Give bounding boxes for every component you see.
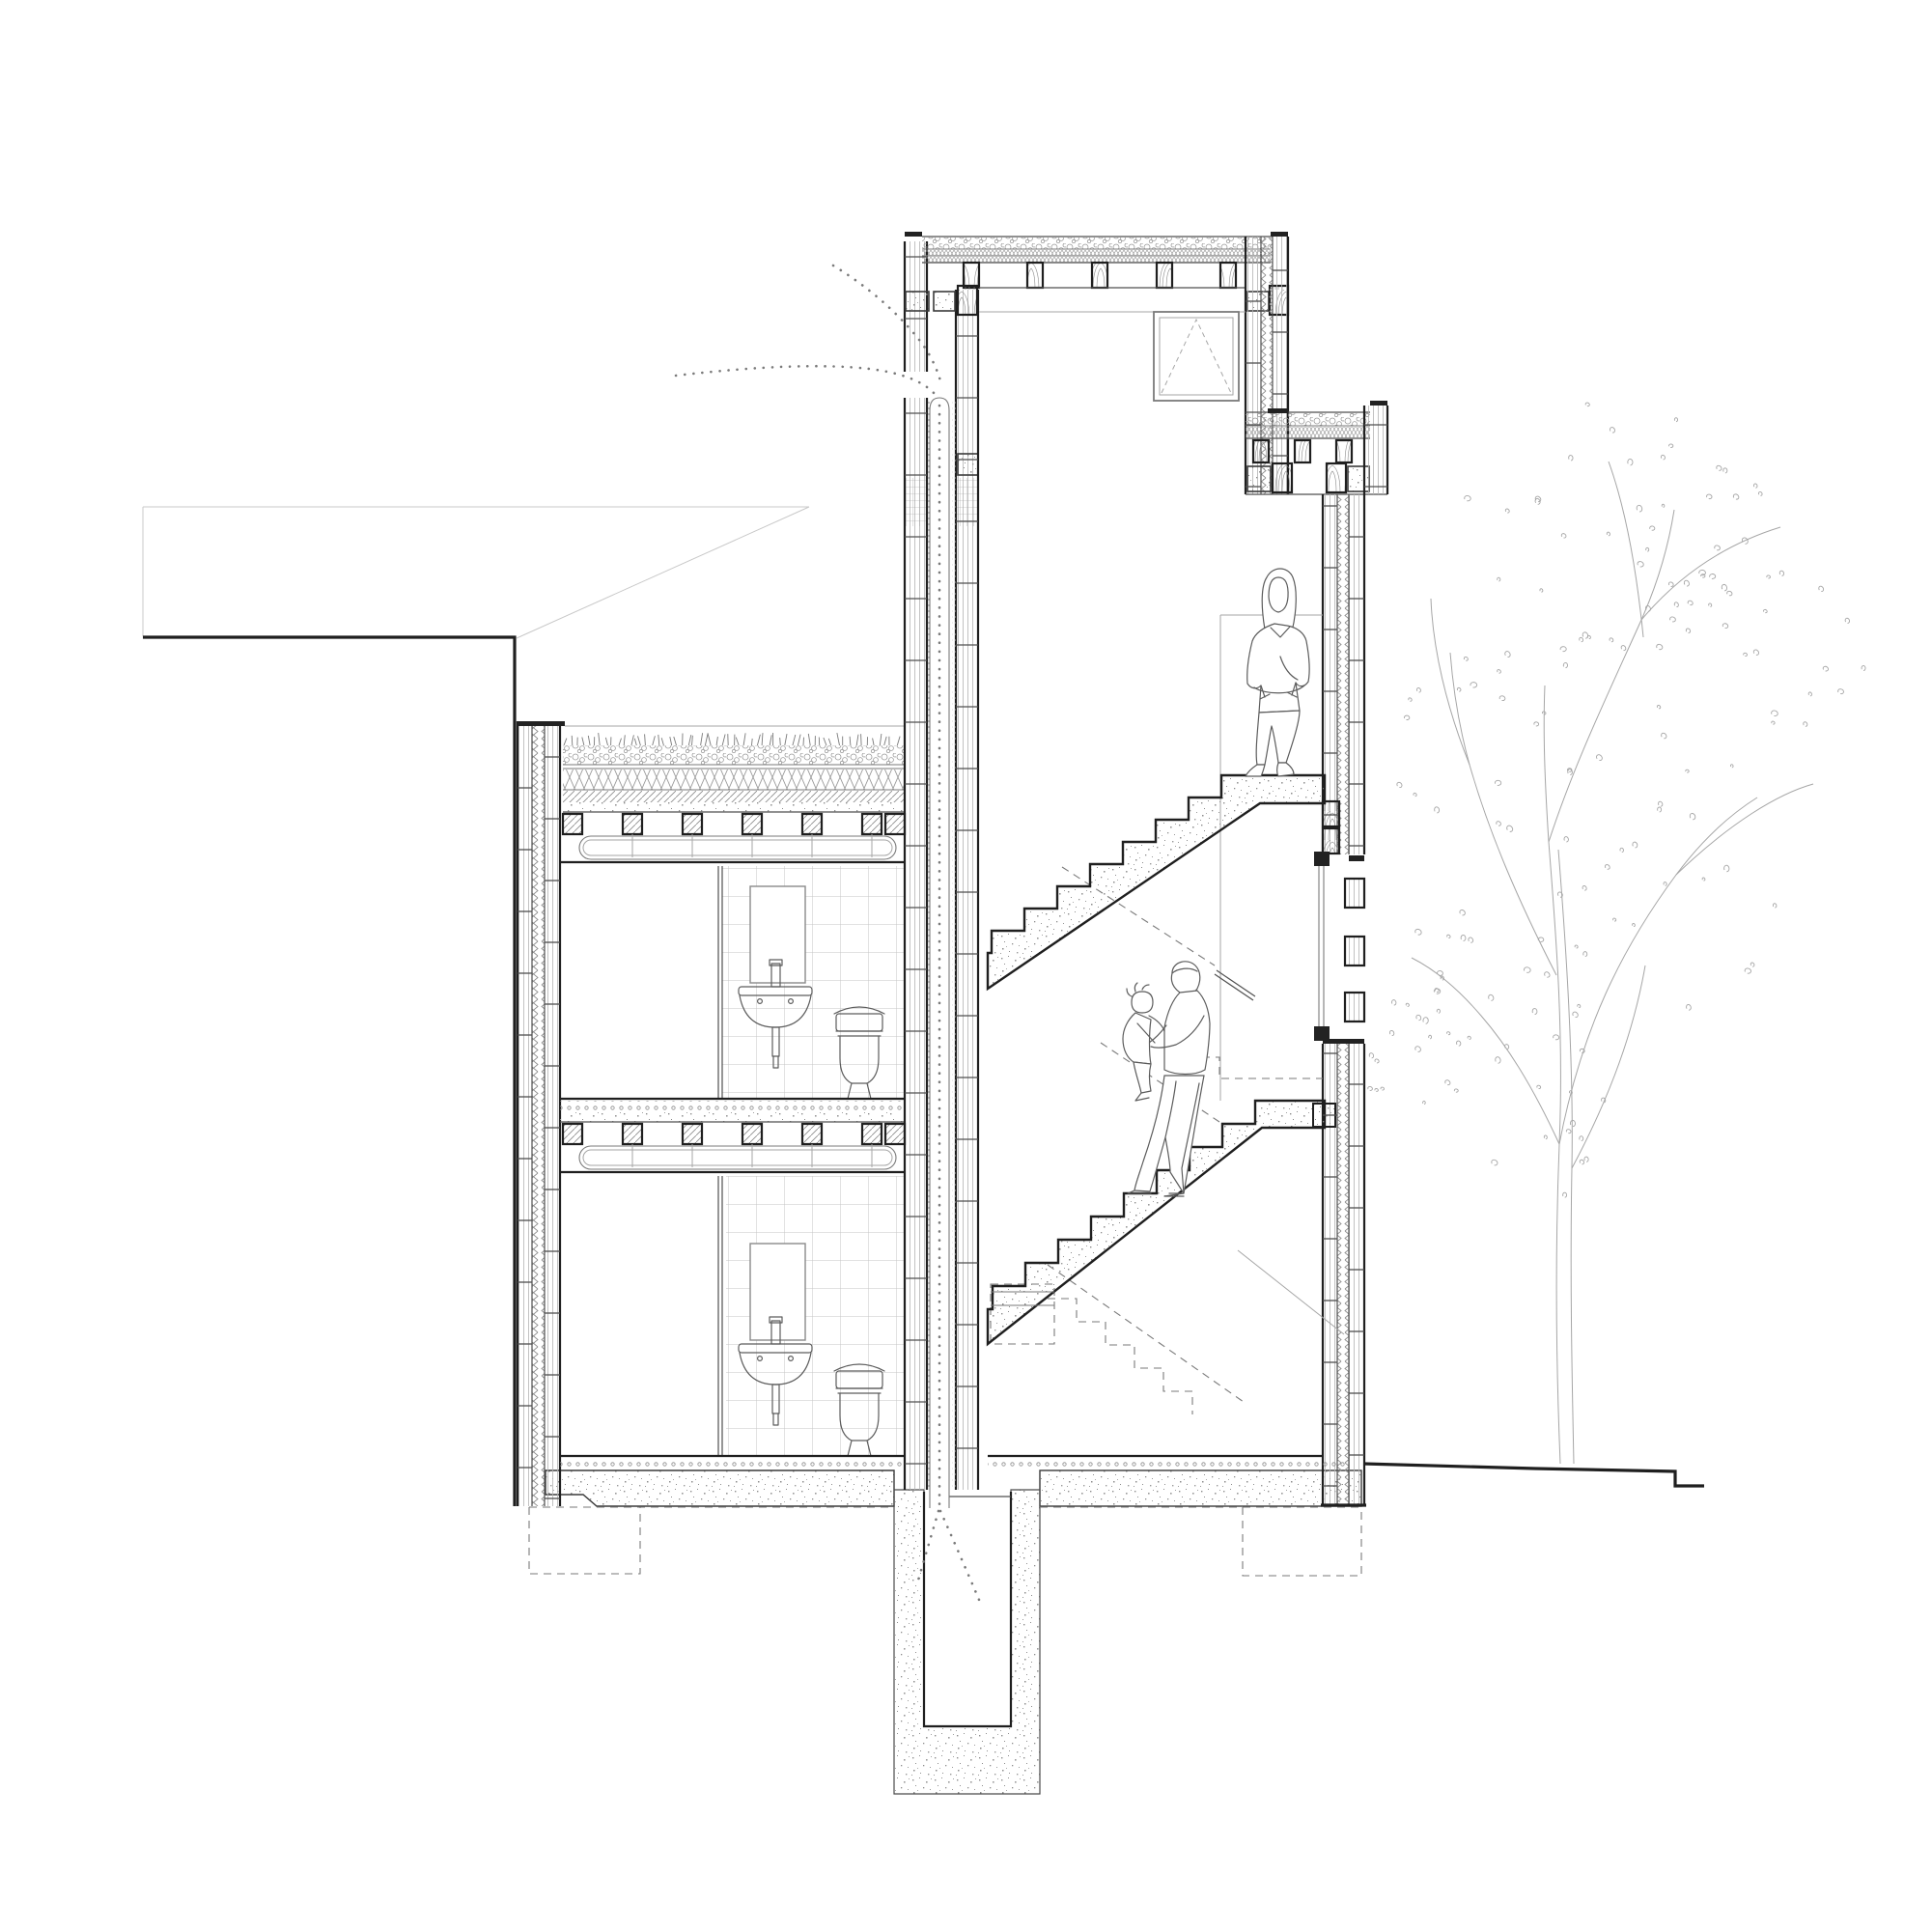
architectural-section-canvas — [0, 0, 1932, 1931]
timber-fin — [1345, 993, 1364, 1021]
levelling-layer — [563, 802, 905, 812]
timber-fin — [1345, 937, 1364, 965]
floor-screed-stairhall — [988, 1458, 1345, 1470]
bathroom-upper — [718, 866, 905, 1099]
ground-slab-left — [546, 1470, 894, 1506]
screed-layer — [563, 791, 905, 802]
parapet-cap — [518, 721, 565, 726]
mirror-lower — [750, 1244, 805, 1340]
mirror-upper — [750, 886, 805, 983]
floor-screed-lower — [560, 1458, 905, 1470]
gravel-layer — [563, 745, 905, 765]
left-cavity-wall — [518, 721, 565, 1506]
timber-fin — [1345, 879, 1364, 908]
shaft-access-hatch — [958, 454, 978, 475]
insulation-layer — [563, 770, 905, 790]
ground-slab-right — [1040, 1470, 1361, 1506]
